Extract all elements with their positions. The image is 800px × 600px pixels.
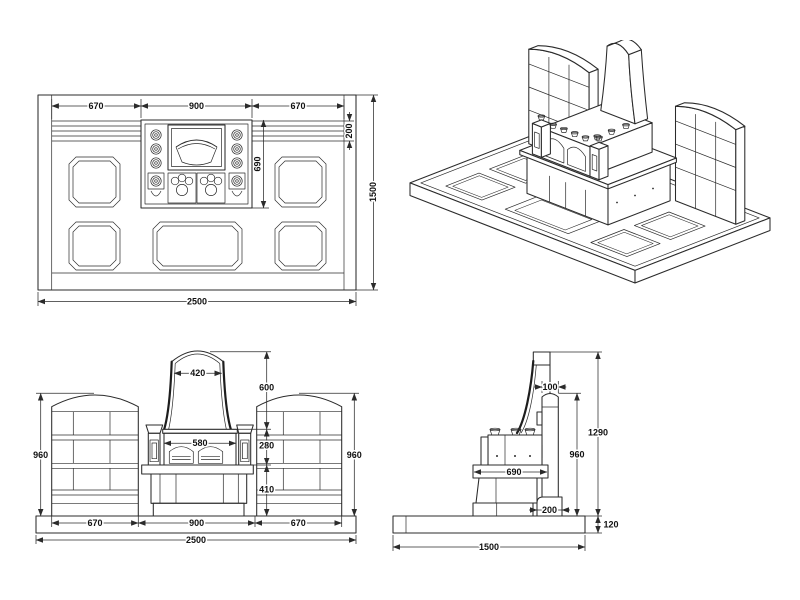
dim-plan-width-total: 2500 [187,296,207,306]
front-left-lamp-pillar [146,425,163,465]
front-right-wall [257,395,342,516]
plan-view: 670 900 670 200 690 1500 2500 [20,85,390,310]
dim-front-upper-stand-height: 280 [259,440,274,450]
dim-front-stand-inner-width: 580 [192,438,207,448]
dim-front-stone-height: 600 [259,382,274,392]
dim-plan-rail-depth: 200 [344,123,354,138]
dim-side-stand-depth: 690 [506,467,521,477]
dim-plan-width-center: 900 [189,101,204,111]
front-elevation-view: 420 580 600 280 410 960 960 670 900 [20,340,390,580]
iso-tombstone [601,40,648,124]
dim-side-depth-total: 1500 [479,542,499,552]
dim-plan-stand-depth: 690 [252,156,262,171]
dim-front-lower-stand-height: 410 [259,484,274,494]
dim-side-wall-base-depth: 200 [542,505,557,515]
side-base-slab [393,516,585,533]
dim-front-stone-top-width: 420 [190,368,205,378]
front-left-wall [52,395,139,516]
front-tombstone [164,351,231,430]
isometric-view [400,40,790,320]
dim-plan-width-left: 670 [88,101,103,111]
dim-side-stone-thickness: 100 [542,382,557,392]
dim-front-width-right: 670 [291,518,306,528]
dim-side-base-height: 120 [603,519,618,529]
iso-left-pillar [532,120,550,157]
dim-front-width-left: 670 [87,518,102,528]
dim-side-wall-height: 960 [569,449,584,459]
dim-front-wall-height-left: 960 [33,450,48,460]
dim-front-wall-height-right: 960 [347,450,362,460]
dim-plan-width-right: 670 [290,101,305,111]
side-elevation-view: 100 690 200 960 1290 120 1500 [390,335,680,580]
plan-center-stand [141,120,252,208]
iso-right-pillar [590,142,608,179]
dim-front-width-total: 2500 [186,535,206,545]
front-right-lamp-pillar [237,425,254,465]
dim-side-monument-height: 1290 [588,427,608,437]
dim-front-width-center: 900 [189,518,204,528]
blueprint-canvas: 670 900 670 200 690 1500 2500 [0,0,800,600]
dim-plan-depth-total: 1500 [368,182,378,202]
